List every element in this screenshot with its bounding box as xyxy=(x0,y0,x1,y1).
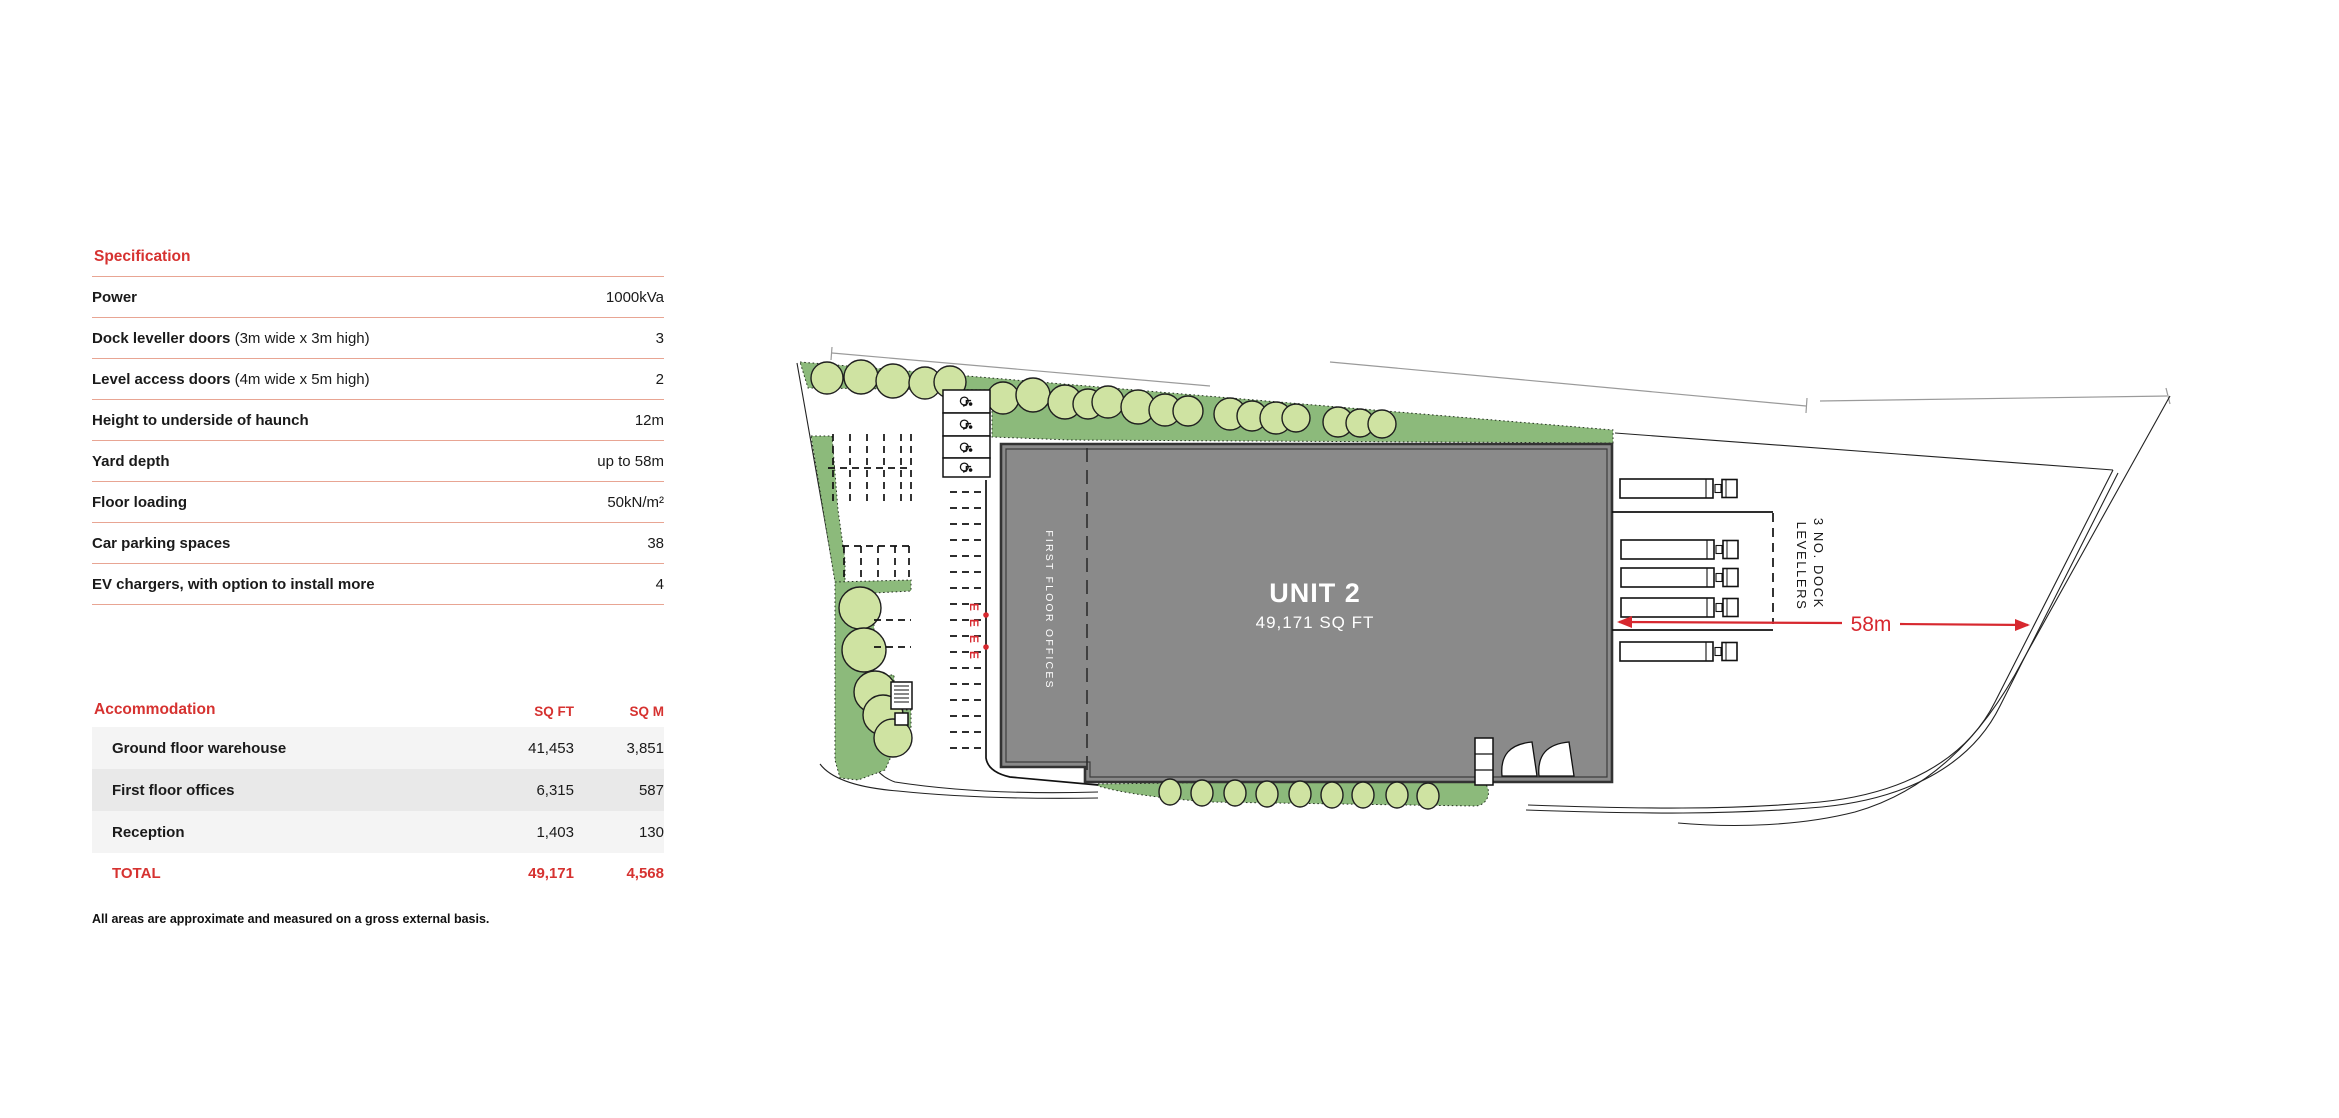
unit-name: UNIT 2 xyxy=(1269,578,1361,608)
ev-bay-label: E xyxy=(967,603,981,611)
accommodation-header: Accommodation SQ FT SQ M xyxy=(92,693,664,719)
ev-bay-label: E xyxy=(967,651,981,659)
spec-row-dock-doors: Dock leveller doors (3m wide x 3m high) … xyxy=(92,317,664,358)
table-row: First floor offices 6,315 587 xyxy=(92,769,664,811)
ev-charger-point xyxy=(983,644,989,650)
ev-bay-label: E xyxy=(967,619,981,627)
col-header-sqm: SQ M xyxy=(574,704,664,719)
spec-row-power: Power 1000kVa xyxy=(92,276,664,317)
ev-charger-point xyxy=(983,612,989,618)
plant-structure xyxy=(1475,738,1493,785)
accessible-parking-bays xyxy=(943,390,990,477)
spec-row-yard-depth: Yard depth up to 58m xyxy=(92,440,664,481)
table-row: Reception 1,403 130 xyxy=(92,811,664,853)
parking-block-mid xyxy=(842,546,911,578)
spec-row-level-doors: Level access doors (4m wide x 5m high) 2 xyxy=(92,358,664,399)
accommodation-title: Accommodation xyxy=(92,701,484,719)
ev-bay-label: E xyxy=(967,635,981,643)
truck-icon xyxy=(1620,479,1737,498)
green-wedge-left xyxy=(811,436,845,582)
col-header-sqft: SQ FT xyxy=(484,704,574,719)
spec-row-floor-loading: Floor loading 50kN/m² xyxy=(92,481,664,522)
table-row: Ground floor warehouse 41,453 3,851 xyxy=(92,727,664,769)
unit2-building: FIRST FLOOR OFFICES UNIT 2 49,171 SQ FT xyxy=(1001,444,1612,782)
spec-row-haunch: Height to underside of haunch 12m xyxy=(92,399,664,440)
unit-area: 49,171 SQ FT xyxy=(1256,613,1375,632)
first-floor-offices-label: FIRST FLOOR OFFICES xyxy=(1043,530,1055,689)
spec-row-ev: EV chargers, with option to install more… xyxy=(92,563,664,605)
spec-row-parking: Car parking spaces 38 xyxy=(92,522,664,563)
areas-footnote: All areas are approximate and measured o… xyxy=(92,912,692,926)
table-total-row: TOTAL 49,171 4,568 xyxy=(92,853,664,893)
yard-dimension-label: 58m xyxy=(1851,613,1892,636)
accommodation-table: Accommodation SQ FT SQ M Ground floor wa… xyxy=(92,693,664,893)
truck-icon xyxy=(1621,598,1738,617)
truck-icon xyxy=(1620,642,1737,661)
trees-bottom xyxy=(1159,779,1439,809)
specification-table: Specification Power 1000kVa Dock levelle… xyxy=(92,248,664,605)
truck-icon xyxy=(1621,540,1738,559)
dock-levellers-label: 3 NO. DOCK LEVELLERS xyxy=(1794,518,1826,614)
dock-area: 3 NO. DOCK LEVELLERS xyxy=(1612,479,1826,661)
truck-icon xyxy=(1621,568,1738,587)
parking-block-top xyxy=(828,434,911,503)
site-plan: E E E E FIRST FLOOR OFFICES UNIT 2 49,17… xyxy=(780,330,2180,840)
specification-title: Specification xyxy=(94,248,664,266)
